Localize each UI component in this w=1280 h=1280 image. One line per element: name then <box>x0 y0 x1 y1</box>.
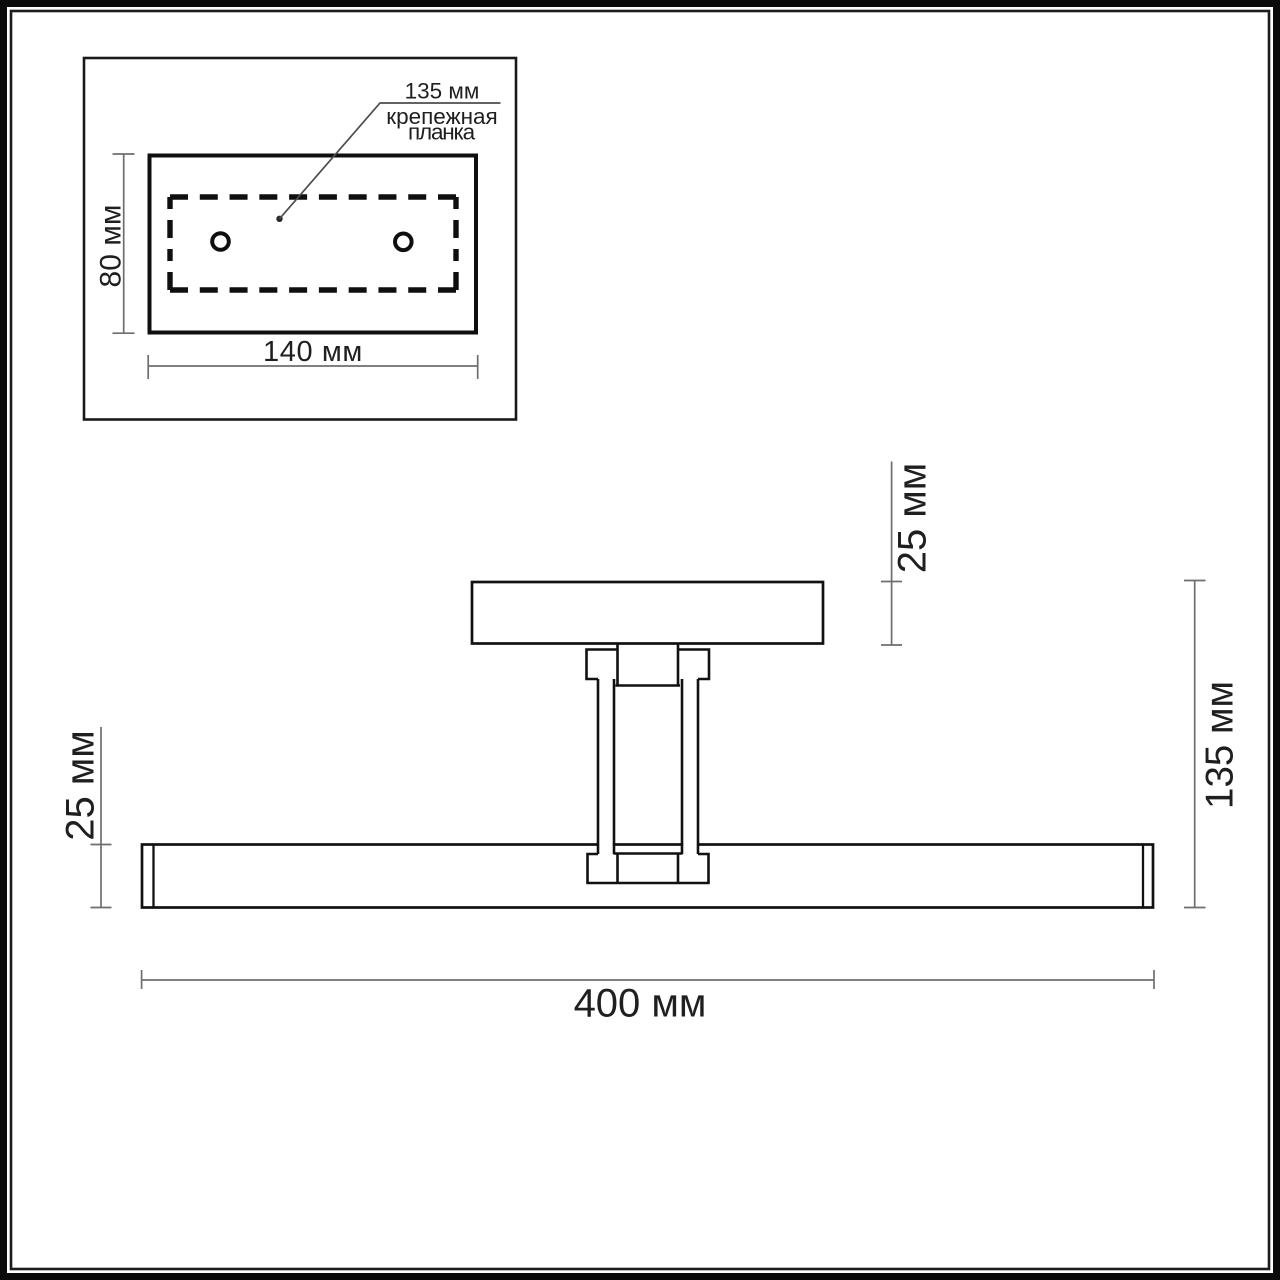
svg-text:25 мм: 25 мм <box>59 730 103 841</box>
svg-text:135 мм: 135 мм <box>405 79 480 104</box>
svg-text:400 мм: 400 мм <box>574 982 707 1026</box>
svg-text:140 мм: 140 мм <box>263 336 363 368</box>
svg-text:80 мм: 80 мм <box>95 205 128 288</box>
svg-text:планка: планка <box>408 119 476 144</box>
svg-text:25 мм: 25 мм <box>891 463 935 574</box>
svg-text:135 мм: 135 мм <box>1199 681 1242 809</box>
